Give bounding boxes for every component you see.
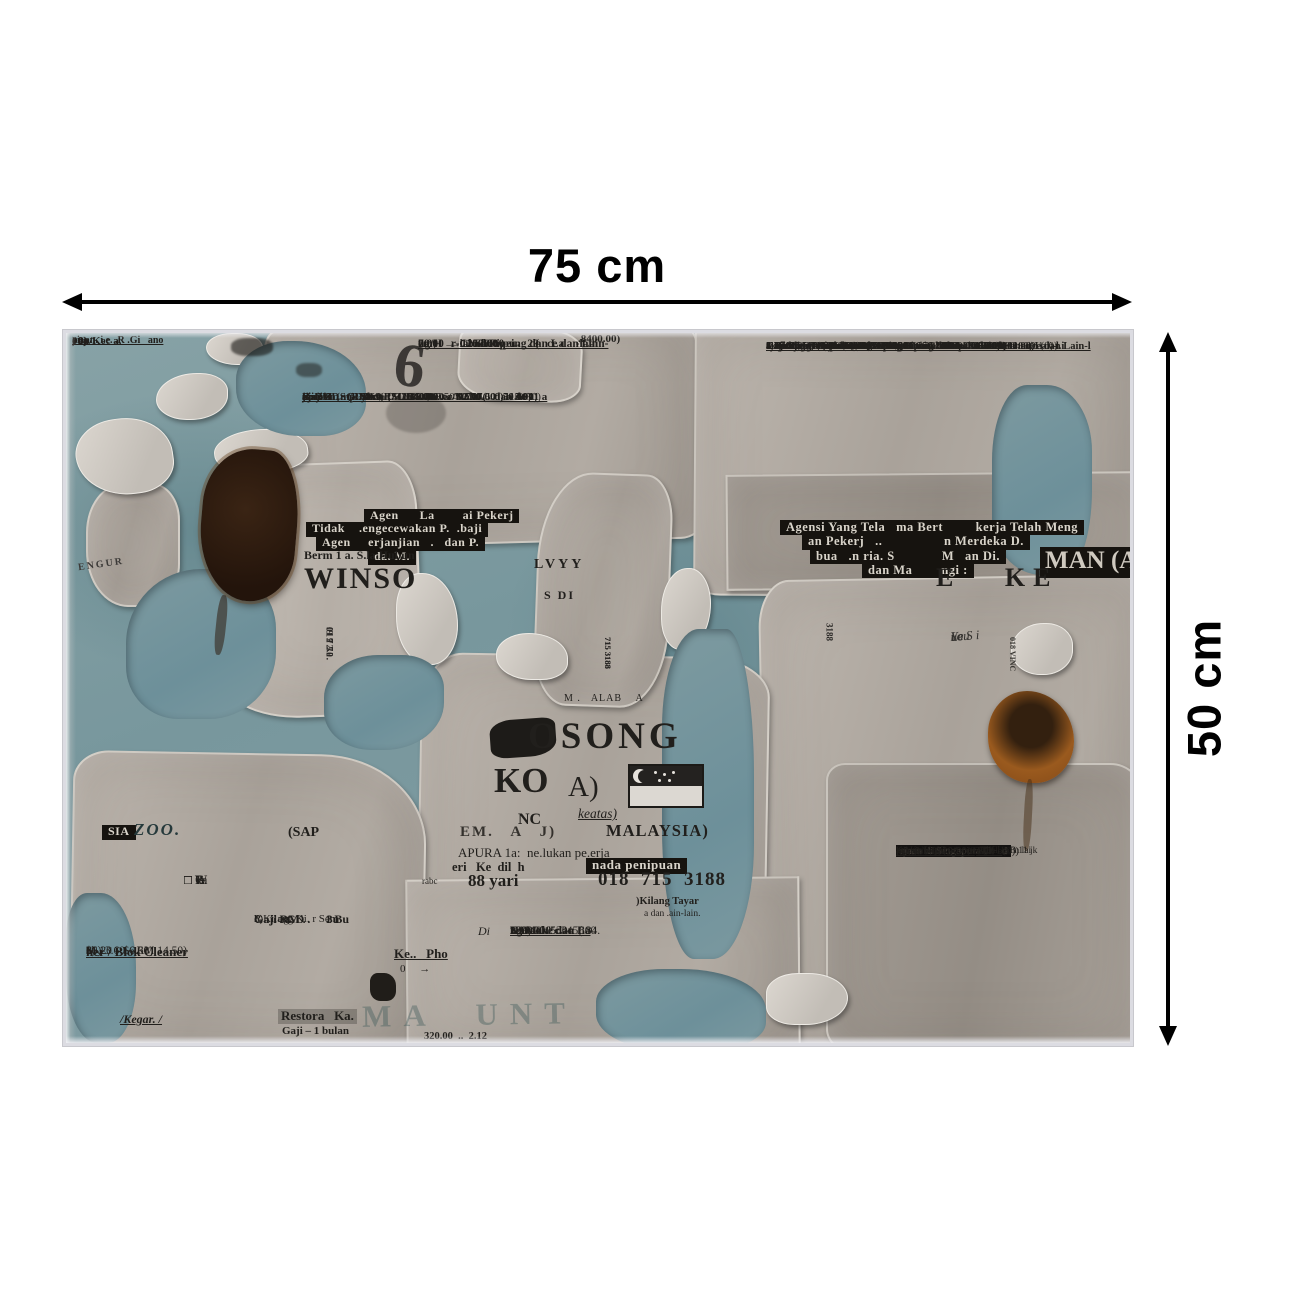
- stain: [231, 338, 273, 356]
- paint-gap: [596, 969, 766, 1046]
- restoran-line: Restora Ka.: [278, 1009, 357, 1024]
- paper-patch: [826, 763, 1133, 1046]
- width-arrow-line: [76, 300, 1118, 304]
- text-line: □ B.: [184, 873, 207, 887]
- arrow-right-head-icon: [1112, 293, 1132, 311]
- paper-curl: [1011, 623, 1073, 675]
- arrow-down-head-icon: [1159, 1026, 1177, 1046]
- product-dimension-image: 75 cm 50 cm: [0, 0, 1300, 1300]
- flag-stars-icon: [654, 771, 657, 774]
- handwriting-fragment: ZOO.: [134, 820, 181, 840]
- stain: [296, 363, 322, 377]
- singapore-flag: [628, 764, 704, 808]
- text-fragment: a dan .ain-lain.: [644, 909, 700, 920]
- width-arrow: [62, 299, 1132, 305]
- text-line: ue S i: [950, 627, 980, 645]
- phone-number: 018 715 3188: [598, 869, 726, 891]
- phone-tab: 715 3188: [602, 637, 612, 693]
- photo-edge: [66, 1036, 1130, 1043]
- text-line: 1 1. 530c: [510, 925, 573, 939]
- text-line: emud : Insuran,h spa. 0ae V: [302, 391, 461, 404]
- height-arrow-line: [1166, 346, 1170, 1032]
- faded-ghost-letters: MA UNT: [362, 995, 577, 1034]
- text-line: Kemudahan Lai. : Insura o.d .a. pin| 10.…: [766, 341, 1032, 353]
- phone-tab: 3188: [824, 623, 834, 663]
- keatas-note: keatas): [578, 806, 617, 822]
- tear-off-phone-tabs: 715 3188715 3188715 3188: [578, 619, 602, 677]
- text-line: R og.: [254, 913, 292, 927]
- inverse-text-band-right: Agensi Yang Tela ma Bert kerja Telah Men…: [714, 491, 733, 577]
- height-arrow: [1165, 332, 1171, 1046]
- flag-bottom-half: [630, 786, 702, 806]
- winson-headline: WINSO: [304, 562, 417, 597]
- kosong-headline: OSONG: [528, 716, 682, 759]
- vertical-text: 018 VINC: [1008, 637, 1017, 683]
- text-fragment: Ke.. Pho: [394, 947, 448, 962]
- text-fragment: rabc: [422, 876, 438, 886]
- inverse-row: SIA: [102, 825, 136, 840]
- ko-letters: KO: [494, 761, 548, 801]
- width-dimension-label: 75 cm: [62, 238, 1132, 293]
- letters-fragment: EM. A J): [460, 824, 556, 841]
- text-line: a': [86, 945, 93, 959]
- photo-edge: [66, 333, 1130, 338]
- ink-blot: [370, 973, 396, 1001]
- flag-top-half: [630, 766, 702, 786]
- text-fragment: Di: [478, 925, 490, 939]
- kilang-tayar-line: )Kilang Tayar: [636, 896, 699, 908]
- letters-fragment: M . ALAB A: [564, 693, 644, 705]
- paint-gap: [324, 655, 444, 750]
- photo-edge: [66, 333, 76, 1043]
- inverse-row: an Pekerj .. n Merdeka D.: [802, 534, 1030, 549]
- letters-fragment: E KE: [936, 563, 1058, 593]
- flag-crescent-icon: [633, 769, 647, 783]
- text-fragment: (SAP: [288, 825, 319, 841]
- phone-tab: .9 72.: [324, 627, 334, 675]
- text-line: nan. e: [976, 845, 1002, 857]
- paper-curl: [496, 633, 568, 680]
- text-line: em; r-Cond/Pipeing dan La -lain: [418, 337, 598, 352]
- contact-line: Berm 1 a. S.la Hubun: [304, 549, 415, 563]
- text-fragment: 88 yari: [468, 871, 519, 891]
- malaysia-label: MALAYSIA): [606, 822, 709, 841]
- text-fragment: 0 →: [400, 963, 430, 976]
- paper-curl: [156, 373, 228, 420]
- text-fragment: /Kegar. /: [120, 1013, 162, 1027]
- tear-off-phone-tabs: 012 72.019 30.012 70..9 72.: [300, 609, 324, 659]
- letters-fragment: LVYY: [534, 557, 584, 573]
- a-paren: A): [568, 771, 599, 804]
- product-photo: ai .an. i.e. .R .Gi ano) 0)00). an/Kec a…: [63, 330, 1133, 1046]
- inverse-row: bua .n ria. S M an Di.: [810, 549, 1006, 564]
- inverse-row: Agensi Yang Tela ma Bert kerja Telah Men…: [780, 520, 1084, 535]
- letters-fragment: S DI: [544, 589, 575, 603]
- height-dimension-label: 50 cm: [1177, 619, 1232, 757]
